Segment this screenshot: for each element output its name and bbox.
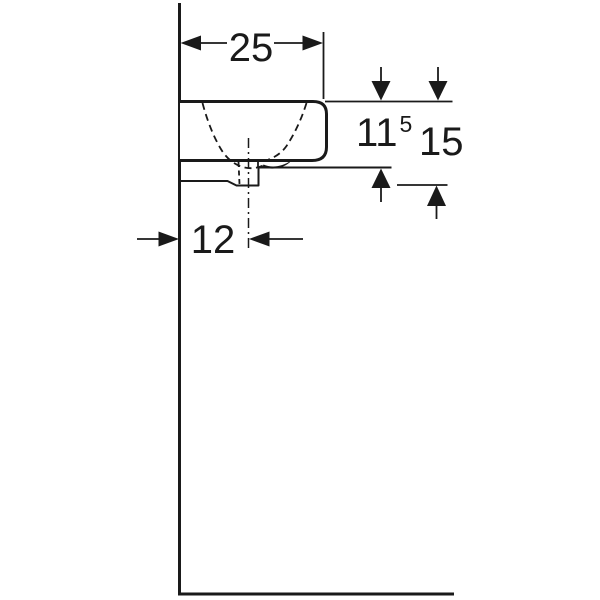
washbasin-outline [180, 102, 327, 161]
dimension-label-waste-offset: 12 [191, 218, 236, 262]
dimension-label-depth-main: 11 [356, 111, 398, 155]
drain-hidden-line-left [239, 162, 240, 184]
washbasin-dimension-drawing: 25 115 15 12 [0, 0, 600, 600]
dimension-label-width: 25 [229, 26, 274, 70]
drawing-background [0, 0, 600, 600]
dimension-label-overall-depth: 15 [419, 120, 464, 164]
dimension-label-depth-superscript: 5 [400, 111, 413, 137]
drawing-canvas: 25 115 15 12 [0, 0, 600, 600]
